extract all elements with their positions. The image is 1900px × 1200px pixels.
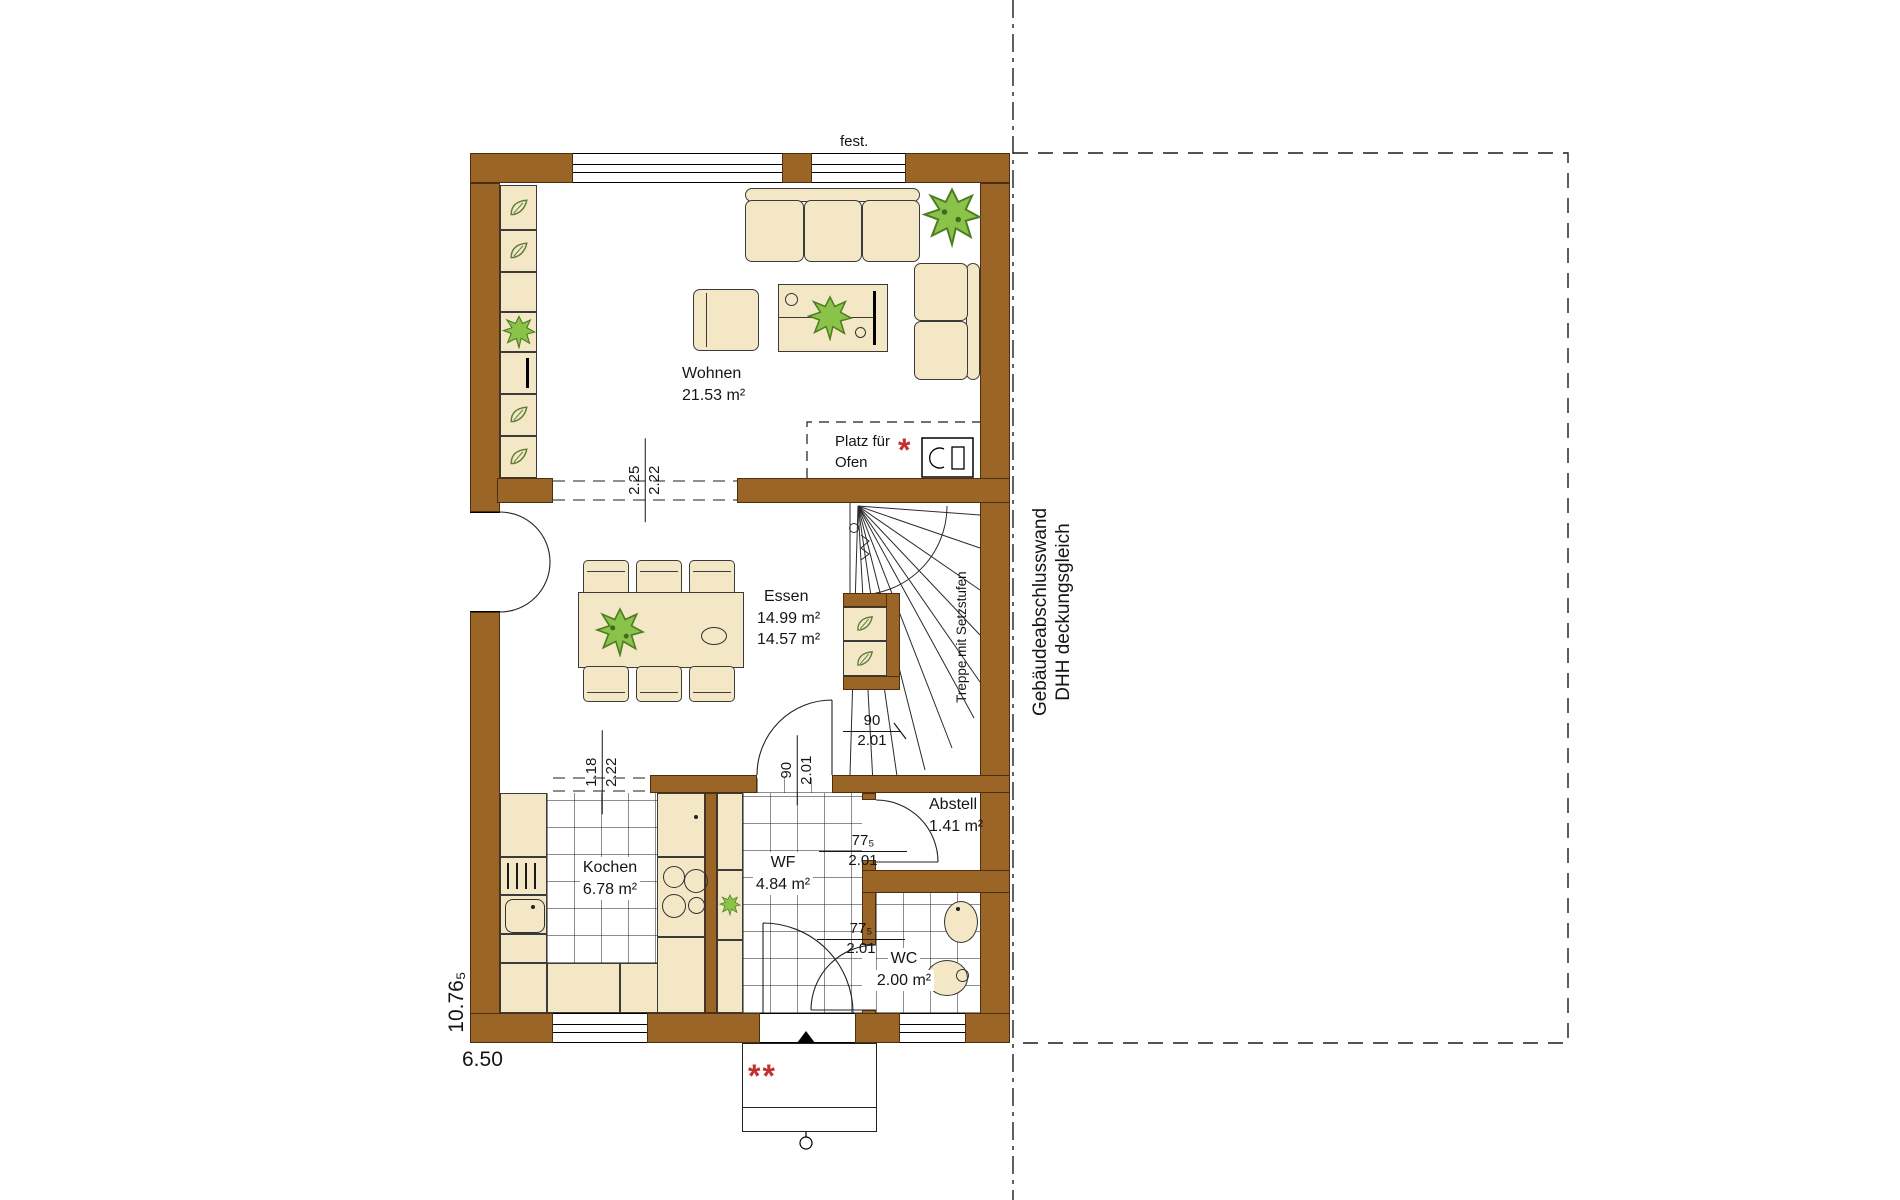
wall-segment <box>470 612 500 1043</box>
dim-width: 77₅ <box>819 832 907 851</box>
room-name: Abstell <box>929 794 983 816</box>
room-label-wohnen: Wohnen 21.53 m² <box>682 363 745 406</box>
dining-chair <box>636 560 682 596</box>
shelf-cell <box>500 394 537 436</box>
room-area: 4.84 m² <box>753 874 813 896</box>
shelf-cell <box>500 272 537 312</box>
dim-height: 2.01 <box>843 731 901 751</box>
fixed-window-label: fest. <box>840 131 868 152</box>
wall-segment <box>497 478 553 503</box>
bowl-icon <box>701 627 727 645</box>
room-name: WF <box>768 852 799 874</box>
entrance-note-asterisks: ** <box>748 1058 777 1095</box>
wall-segment <box>832 775 1010 793</box>
cup-icon <box>785 293 798 306</box>
sofa-backrest <box>966 263 980 380</box>
wall-segment <box>705 793 717 1013</box>
room-area: 1.41 m² <box>929 816 983 838</box>
wc-window <box>900 1013 965 1043</box>
dining-chair <box>636 666 682 702</box>
dim-height: 2.01 <box>817 939 905 959</box>
leaf-icon <box>506 195 532 221</box>
total-depth-dim: 10.76₅ <box>443 957 471 1047</box>
stair-shelf-cell <box>843 641 887 676</box>
window-glazing <box>553 1024 647 1033</box>
dining-chair <box>583 560 629 596</box>
dim-width: 77₅ <box>817 920 905 939</box>
kitchen-counter <box>547 963 620 1013</box>
room-label-abstell: Abstell 1.41 m² <box>929 794 983 837</box>
wall-segment <box>737 478 1010 503</box>
table-edge <box>873 291 876 345</box>
shelf-cell <box>500 230 537 272</box>
burner-icon <box>662 894 686 918</box>
dim-height: 2.01 <box>797 735 817 805</box>
window-glazing <box>812 164 905 173</box>
room-area: 14.99 m² <box>757 608 820 630</box>
cabinet-handle <box>526 358 529 388</box>
stove-area-label: Platz für Ofen <box>835 431 890 473</box>
room-label-wf: WF 4.84 m² <box>745 852 821 895</box>
leaf-icon <box>506 444 532 470</box>
hall-cabinet <box>717 793 743 870</box>
stove-note-asterisk: * <box>898 432 912 469</box>
wall-segment <box>862 870 1010 893</box>
stove-icon <box>922 438 973 477</box>
total-width-dim: 6.50 <box>462 1046 503 1074</box>
stair-label: Treppe mit Setzstufen <box>953 557 971 717</box>
party-wall-line1: Gebäudeabschlusswand <box>1029 487 1052 737</box>
wall-segment <box>965 1013 1010 1043</box>
party-wall-line2: DHH deckungsgleich <box>1052 487 1075 737</box>
dining-chair <box>689 560 735 596</box>
wall-segment <box>470 183 500 512</box>
room-name: Kochen <box>580 857 640 879</box>
sink-drain <box>531 905 535 909</box>
plant-icon <box>807 295 853 341</box>
dining-chair <box>583 666 629 702</box>
hall-cabinet <box>717 940 743 1013</box>
dining-chair <box>689 666 735 702</box>
dim-wc-door: 77₅ 2.01 <box>817 920 905 959</box>
kitchen-sink-counter <box>500 895 547 934</box>
dim-width: 1.18 <box>583 730 602 814</box>
room-label-essen: Essen 14.99 m² 14.57 m² <box>757 586 820 651</box>
kitchen-counter <box>500 963 547 1013</box>
room-label-kochen: Kochen 6.78 m² <box>560 857 660 900</box>
cooktop <box>657 857 705 937</box>
kitchen-counter <box>500 793 547 857</box>
chair-back <box>693 692 731 701</box>
stove-label-line2: Ofen <box>835 452 890 473</box>
room-name: Essen <box>757 586 820 608</box>
leaf-icon <box>506 402 532 428</box>
wall-segment <box>980 183 1010 1043</box>
dim-width: 90 <box>778 735 797 805</box>
sofa-cushion <box>862 200 920 262</box>
drainer-bars <box>507 863 541 889</box>
room-area: 21.53 m² <box>682 385 745 407</box>
room-area: 6.78 m² <box>580 879 640 901</box>
dining-table <box>578 592 744 668</box>
leaf-icon <box>853 612 877 636</box>
party-wall-label: Gebäudeabschlusswand DHH deckungsgleich <box>1029 487 1075 737</box>
stair-shelf-cell <box>843 607 887 641</box>
basin-tap <box>956 907 960 911</box>
wall-segment <box>862 793 876 800</box>
plant-icon <box>719 894 741 916</box>
washbasin-icon <box>944 901 978 943</box>
corner-plant <box>922 186 982 253</box>
wall-segment <box>905 153 1010 183</box>
armchair-back <box>696 293 707 347</box>
stair-walkline-arc <box>858 506 947 595</box>
dhh-dashed-outline <box>1013 153 1568 1043</box>
cabinet-handle <box>694 815 698 819</box>
kitchen-counter <box>500 934 547 963</box>
window-glazing <box>573 164 782 173</box>
side-door-opening <box>470 512 500 612</box>
chair-back <box>587 692 625 701</box>
wall-segment <box>650 775 757 793</box>
essen-side-door-arc <box>500 512 550 612</box>
room-name: Wohnen <box>682 363 745 385</box>
hall-cabinet-plant <box>717 870 743 940</box>
shelf-cell-plant <box>500 312 537 352</box>
chair-back <box>640 692 678 701</box>
dim-wohnen-essen-opening: 2.25 2.22 <box>626 438 665 522</box>
dim-width: 90 <box>843 712 901 731</box>
threshold-marker-icon <box>797 1031 815 1043</box>
leaf-icon <box>506 238 532 264</box>
dim-height: 2.01 <box>819 851 907 871</box>
dim-abstell-door: 77₅ 2.01 <box>819 832 907 871</box>
kitchen-counter <box>657 793 705 857</box>
shelf-cell <box>500 436 537 478</box>
toilet-flush <box>956 969 969 982</box>
sink <box>505 899 545 933</box>
shelf-cell <box>500 185 537 230</box>
sofa-cushion <box>914 263 968 321</box>
dim-stair-door: 90 2.01 <box>843 712 901 751</box>
sofa-cushion <box>914 321 968 380</box>
armchair <box>693 289 759 351</box>
porch-step <box>743 1107 876 1108</box>
burner-icon <box>663 866 685 888</box>
stove-label-line1: Platz für <box>835 431 890 452</box>
room-area: 2.00 m² <box>874 970 934 992</box>
wall-segment <box>647 1013 760 1043</box>
window-glazing <box>900 1024 965 1033</box>
magnifier-icon <box>855 327 866 338</box>
kitchen-drainer <box>500 857 547 895</box>
wall-segment <box>470 153 573 183</box>
plant-icon <box>922 186 982 248</box>
chair-back <box>640 563 678 572</box>
wall-segment <box>855 1013 900 1043</box>
table-plant <box>807 295 853 346</box>
burner-icon <box>688 897 705 914</box>
dim-height: 2.22 <box>645 438 665 522</box>
table-plant <box>595 607 645 662</box>
plant-icon <box>595 607 645 657</box>
chair-back <box>587 563 625 572</box>
room-area: 14.57 m² <box>757 629 820 651</box>
kitchen-window <box>553 1013 647 1043</box>
plant-icon <box>502 315 536 349</box>
coffee-table <box>778 284 888 352</box>
terrace-window <box>573 153 782 183</box>
chair-back <box>693 563 731 572</box>
wall-segment <box>782 153 812 183</box>
dim-width: 2.25 <box>626 438 645 522</box>
floor-plan: Wohnen 21.53 m² Essen 14.99 m² 14.57 m² … <box>0 0 1900 1200</box>
dim-height: 2.22 <box>602 730 622 814</box>
dim-essen-door: 90 2.01 <box>778 735 817 805</box>
dim-kochen-opening: 1.18 2.22 <box>583 730 622 814</box>
shelf-cell <box>500 352 537 394</box>
wall-segment <box>470 1013 553 1043</box>
kitchen-counter <box>657 937 705 1013</box>
stair-shelf-wall <box>843 676 900 690</box>
leaf-icon <box>853 647 877 671</box>
burner-icon <box>684 869 708 893</box>
fixed-window <box>812 153 905 183</box>
sofa-cushion <box>804 200 862 262</box>
sofa-cushion <box>745 200 804 262</box>
